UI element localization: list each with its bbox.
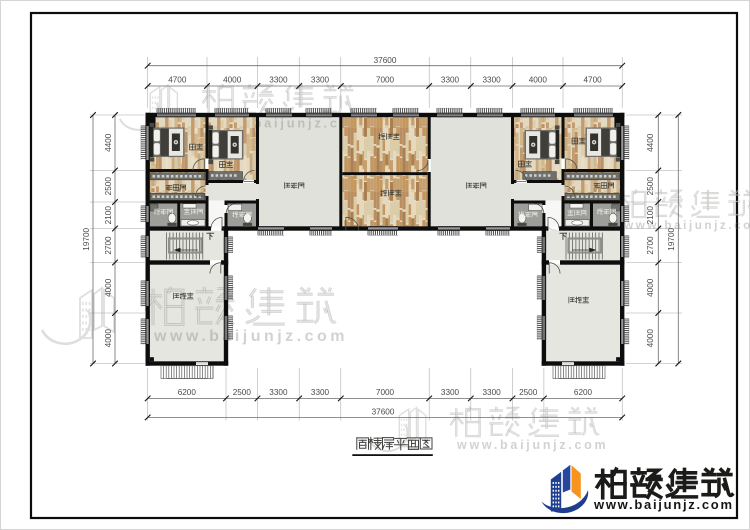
svg-text:7000: 7000 xyxy=(376,76,395,85)
svg-text:3300: 3300 xyxy=(482,388,501,397)
svg-text:4000: 4000 xyxy=(646,278,655,297)
svg-text:6200: 6200 xyxy=(574,388,593,397)
svg-text:4000: 4000 xyxy=(646,329,655,348)
svg-text:3300: 3300 xyxy=(269,76,288,85)
svg-text:www.baijunjz.com: www.baijunjz.com xyxy=(623,219,750,232)
svg-text:3300: 3300 xyxy=(482,76,501,85)
svg-text:19700: 19700 xyxy=(82,227,91,250)
svg-text:2500: 2500 xyxy=(646,177,655,196)
svg-text:4000: 4000 xyxy=(223,76,242,85)
svg-text:4400: 4400 xyxy=(646,133,655,152)
svg-text:3300: 3300 xyxy=(311,388,330,397)
svg-text:2500: 2500 xyxy=(233,388,252,397)
svg-text:2500: 2500 xyxy=(519,388,538,397)
svg-text:3300: 3300 xyxy=(441,76,460,85)
svg-text:2100: 2100 xyxy=(104,206,113,225)
svg-text:37600: 37600 xyxy=(374,56,397,65)
svg-text:www.baijunjz.com: www.baijunjz.com xyxy=(593,497,733,512)
svg-text:3300: 3300 xyxy=(441,388,460,397)
svg-text:4400: 4400 xyxy=(104,133,113,152)
svg-text:2700: 2700 xyxy=(646,236,655,255)
svg-text:2500: 2500 xyxy=(104,177,113,196)
svg-text:2700: 2700 xyxy=(104,236,113,255)
svg-text:2100: 2100 xyxy=(646,206,655,225)
svg-text:4000: 4000 xyxy=(104,329,113,348)
svg-text:3300: 3300 xyxy=(311,76,330,85)
svg-text:4700: 4700 xyxy=(168,76,187,85)
svg-text:7000: 7000 xyxy=(376,388,395,397)
svg-text:19700: 19700 xyxy=(667,227,676,250)
svg-text:4000: 4000 xyxy=(529,76,548,85)
svg-text:3300: 3300 xyxy=(269,388,288,397)
svg-text:37600: 37600 xyxy=(372,408,395,417)
svg-text:4000: 4000 xyxy=(104,278,113,297)
svg-text:4700: 4700 xyxy=(583,76,602,85)
svg-text:6200: 6200 xyxy=(178,388,197,397)
